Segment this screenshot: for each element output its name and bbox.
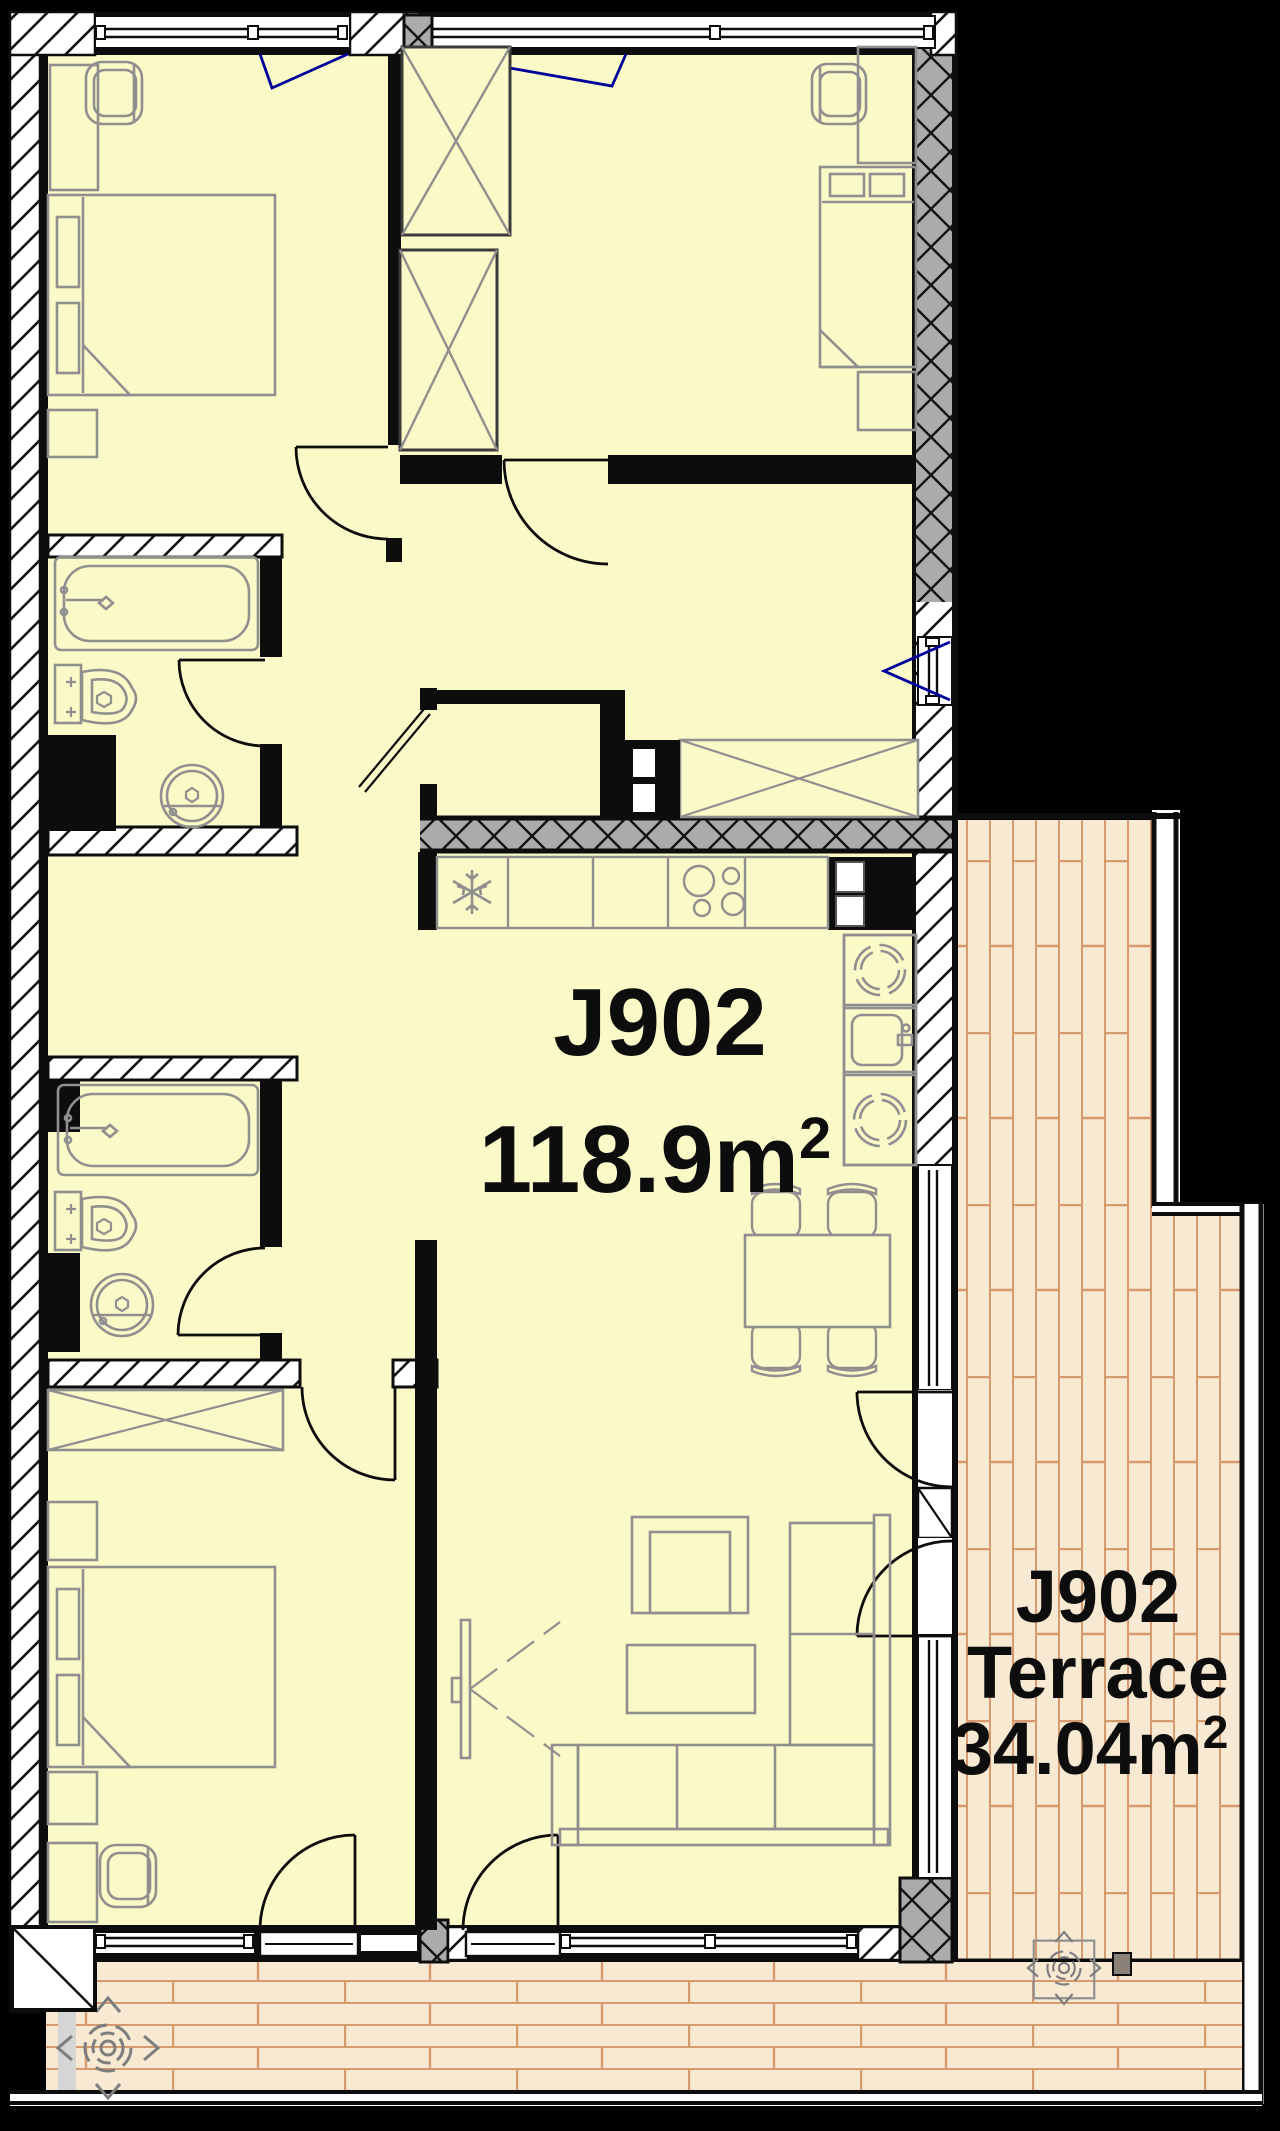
unit-id-label: J902 xyxy=(553,969,767,1076)
corner-wedge xyxy=(12,1927,95,2010)
unit-area-value: 118.9m xyxy=(479,1106,799,1213)
kitchen-tall-unit xyxy=(828,857,916,930)
wall-bedroom2-bottom xyxy=(400,455,502,484)
floor-plan-drawing: J902 118.9m2 J902 Terrace 34.04m2 xyxy=(0,0,1280,2131)
terrace-id-label: J902 xyxy=(1016,1555,1181,1638)
dining-table-icon xyxy=(745,1235,890,1327)
wall-living-left xyxy=(415,1240,437,1930)
floor-plan-page: J902 118.9m2 J902 Terrace 34.04m2 xyxy=(0,0,1280,2131)
unit-area-sup: 2 xyxy=(799,1106,831,1171)
utility-niche xyxy=(625,740,680,820)
bedroom3-wardrobe xyxy=(48,1390,283,1450)
dining-chair-icon xyxy=(752,1322,800,1376)
hall-closet xyxy=(680,740,918,817)
wall-bedroom3-top xyxy=(48,1360,300,1387)
terrace-area-value: 34.04m xyxy=(952,1707,1203,1790)
wardrobe-icon xyxy=(400,250,497,450)
wall-kitchen-band xyxy=(420,817,952,852)
terrace-area-sup: 2 xyxy=(1203,1706,1229,1758)
window-pane xyxy=(360,1934,418,1952)
glazing-terrace-doors xyxy=(918,1165,952,1878)
shaft xyxy=(48,1253,80,1352)
window-living-bottom xyxy=(560,1932,858,1954)
terrace-area-label: 34.04m2 xyxy=(952,1706,1229,1790)
shaft xyxy=(48,1080,80,1132)
wardrobe-icon xyxy=(402,47,510,235)
dining-chair-icon xyxy=(828,1322,876,1376)
terrace-name-label: Terrace xyxy=(967,1631,1229,1714)
terrace-fitting xyxy=(1113,1953,1131,1975)
wall-bath2-top xyxy=(48,1057,297,1080)
dining-chair-icon xyxy=(828,1184,876,1238)
window-bedroom3-bottom xyxy=(95,1932,255,1954)
wall-bath1-top xyxy=(48,535,282,557)
balcony-deck xyxy=(10,1960,1262,2106)
wall-bath1-bottom xyxy=(48,827,297,855)
shaft xyxy=(48,735,116,831)
unit-area-label: 118.9m2 xyxy=(479,1106,832,1213)
built-in-wardrobes xyxy=(400,47,510,450)
